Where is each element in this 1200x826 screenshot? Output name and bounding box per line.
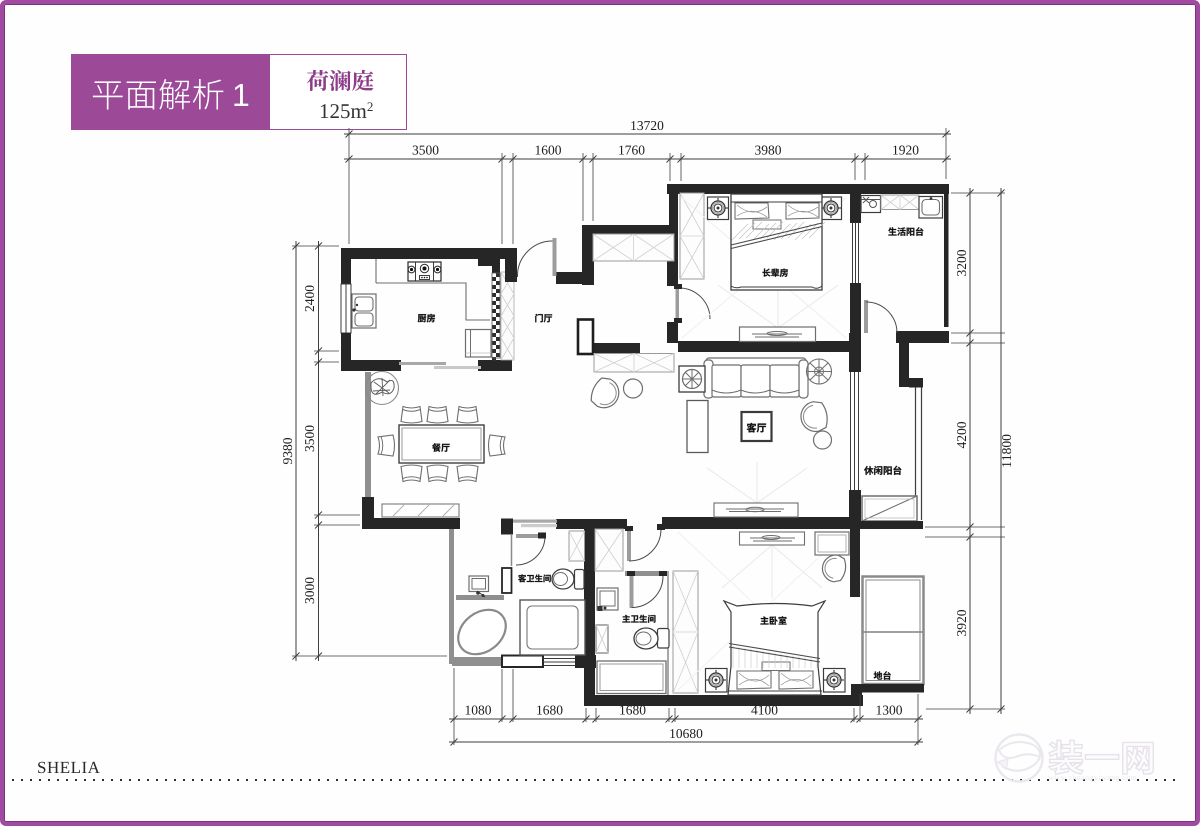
svg-text:www.zhuangyiwang.com: www.zhuangyiwang.com (1048, 773, 1138, 782)
